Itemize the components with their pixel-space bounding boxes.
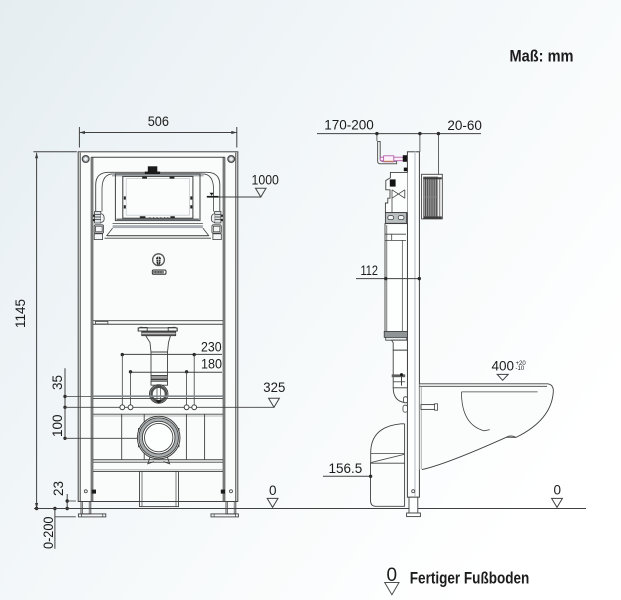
svg-text:325: 325 xyxy=(263,380,285,395)
svg-text:-10: -10 xyxy=(516,366,525,372)
svg-text:100: 100 xyxy=(50,414,65,437)
svg-text:170-200: 170-200 xyxy=(324,118,374,133)
svg-text:23: 23 xyxy=(51,481,66,496)
svg-text:0: 0 xyxy=(554,483,562,498)
svg-text:112: 112 xyxy=(361,263,379,278)
svg-text:20-60: 20-60 xyxy=(447,118,482,133)
svg-text:506: 506 xyxy=(148,114,169,129)
svg-text:400: 400 xyxy=(492,359,515,374)
svg-text:0-200: 0-200 xyxy=(41,517,56,550)
svg-text:Fertiger Fußboden: Fertiger Fußboden xyxy=(410,569,530,588)
svg-text:1145: 1145 xyxy=(13,299,28,328)
svg-text:35: 35 xyxy=(50,375,65,390)
svg-text:156.5: 156.5 xyxy=(329,461,363,476)
svg-text:Maß: mm: Maß: mm xyxy=(510,47,574,66)
svg-text:0: 0 xyxy=(269,483,277,498)
svg-text:1000: 1000 xyxy=(252,172,279,187)
svg-text:180: 180 xyxy=(201,356,222,371)
svg-text:230: 230 xyxy=(201,339,222,354)
